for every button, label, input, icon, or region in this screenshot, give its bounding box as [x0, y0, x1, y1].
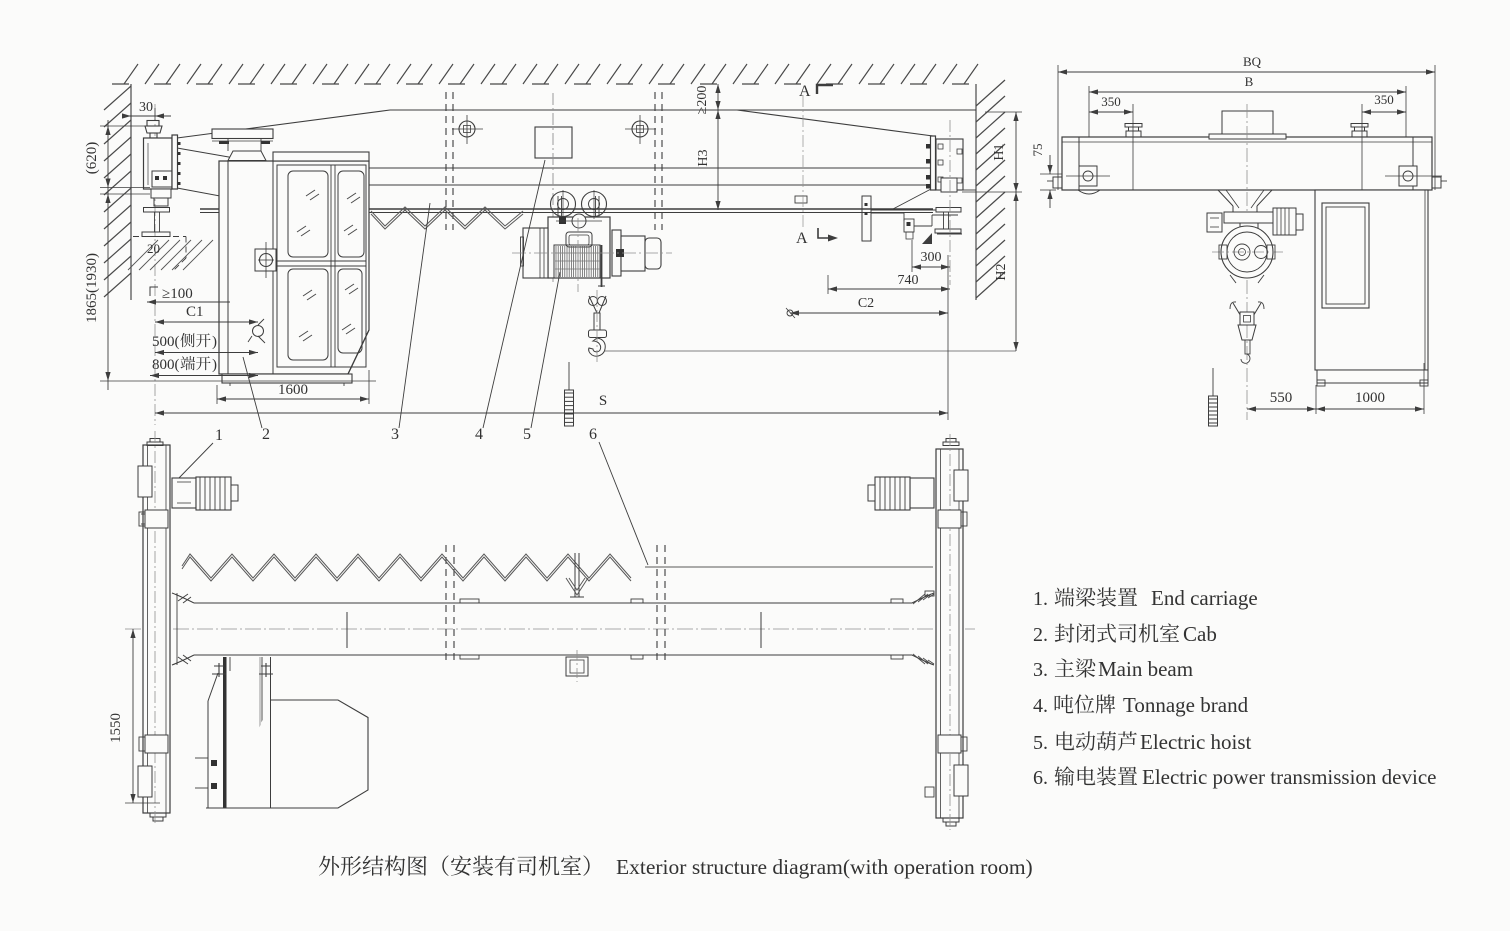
- svg-text:3.: 3.: [1033, 659, 1048, 681]
- svg-text:≥100: ≥100: [162, 286, 193, 302]
- svg-text:Main beam: Main beam: [1098, 657, 1193, 681]
- svg-text:C1: C1: [186, 304, 204, 320]
- svg-text:BQ: BQ: [1243, 54, 1262, 69]
- svg-text:): ): [212, 334, 217, 350]
- svg-text:5: 5: [523, 426, 531, 443]
- svg-text:3: 3: [391, 426, 399, 443]
- svg-text:2: 2: [262, 426, 270, 443]
- svg-text:350: 350: [1374, 92, 1394, 107]
- svg-text:4: 4: [475, 426, 483, 443]
- svg-text:S: S: [599, 393, 607, 409]
- svg-text:H1: H1: [992, 143, 1007, 160]
- svg-text:Tonnage brand: Tonnage brand: [1123, 693, 1249, 717]
- svg-text:350: 350: [1101, 94, 1121, 109]
- svg-text:20: 20: [147, 241, 160, 256]
- svg-text:1: 1: [215, 427, 223, 444]
- svg-text:Electric hoist: Electric hoist: [1140, 730, 1252, 754]
- svg-text:A: A: [799, 83, 811, 100]
- svg-text:30: 30: [139, 100, 153, 115]
- svg-text:4.: 4.: [1033, 695, 1048, 717]
- svg-text:≥200: ≥200: [695, 86, 710, 115]
- svg-text:Exterior structure diagram(wit: Exterior structure diagram(with operatio…: [616, 855, 1033, 879]
- svg-text:2.: 2.: [1033, 624, 1048, 646]
- svg-text:1.: 1.: [1033, 588, 1048, 610]
- svg-text:1000: 1000: [1355, 390, 1385, 406]
- svg-text:75: 75: [1030, 144, 1045, 157]
- svg-text:Electric power transmission de: Electric power transmission device: [1142, 765, 1436, 789]
- svg-text:740: 740: [898, 273, 919, 288]
- svg-text:End carriage: End carriage: [1151, 586, 1258, 610]
- svg-text:6.: 6.: [1033, 767, 1048, 789]
- svg-text:1865(1930): 1865(1930): [84, 253, 100, 323]
- svg-text:H3: H3: [696, 149, 711, 166]
- svg-text:Cab: Cab: [1183, 622, 1217, 646]
- svg-text:1550: 1550: [108, 713, 124, 743]
- svg-text:800(: 800(: [152, 357, 180, 373]
- svg-text:): ): [212, 357, 217, 373]
- svg-text:500(: 500(: [152, 334, 180, 350]
- svg-text:C2: C2: [858, 296, 874, 311]
- svg-text:(620): (620): [84, 142, 100, 175]
- svg-text:B: B: [1245, 74, 1254, 89]
- svg-text:A: A: [796, 230, 808, 247]
- svg-text:6: 6: [589, 426, 597, 443]
- svg-text:300: 300: [921, 250, 942, 265]
- svg-text:1600: 1600: [278, 382, 308, 398]
- svg-text:5.: 5.: [1033, 732, 1048, 754]
- svg-text:550: 550: [1270, 390, 1293, 406]
- svg-text:H2: H2: [994, 263, 1009, 280]
